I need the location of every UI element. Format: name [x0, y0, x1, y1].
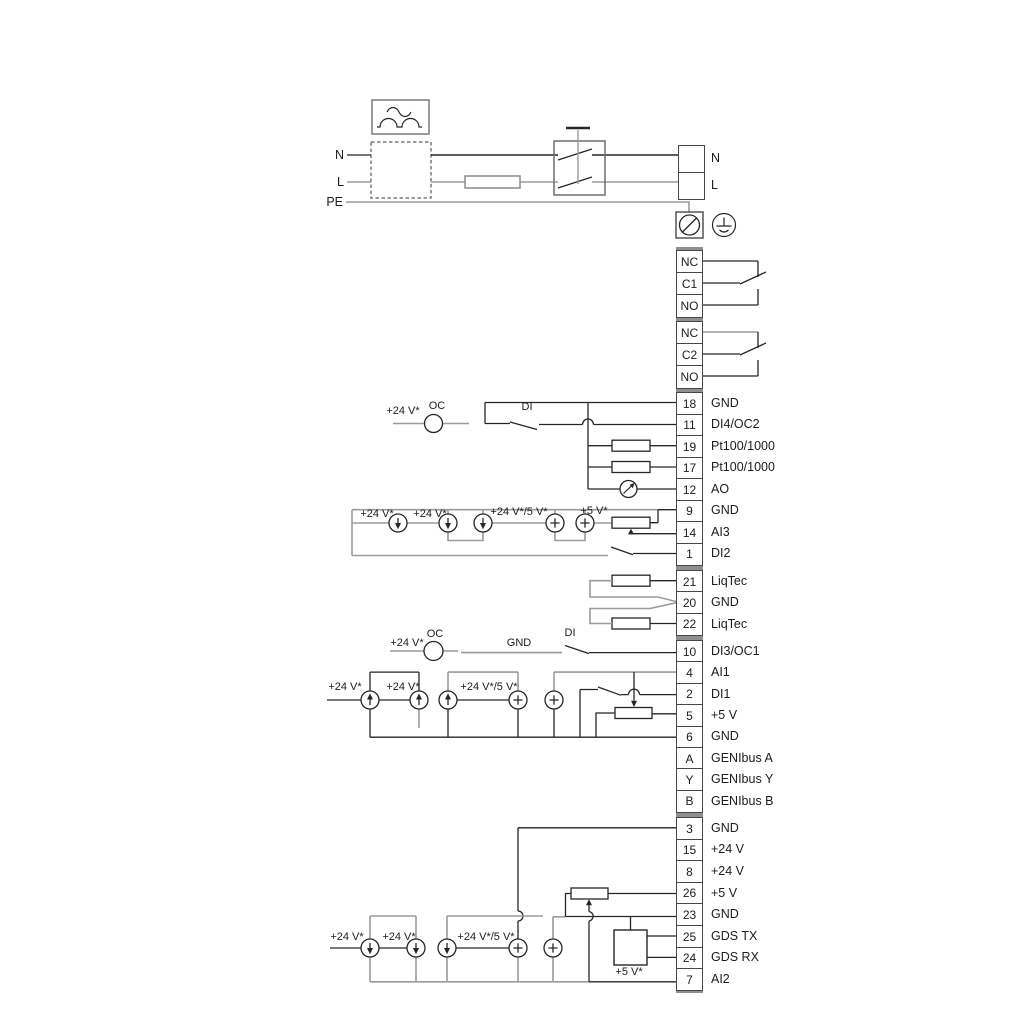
terminal-label-Y: GENIbus Y — [711, 772, 773, 786]
protective-earth-icon — [713, 214, 736, 237]
terminal-label-21: LiqTec — [711, 574, 747, 588]
terminal-label-6: GND — [711, 729, 739, 743]
terminal-label-A: GENIbus A — [711, 751, 773, 765]
terminal-label-25: GDS TX — [711, 929, 757, 943]
terminal-label-18: GND — [711, 396, 739, 410]
wiring-diagram: NLNCC1NONCC2NOGNDDI4/OC2Pt100/1000Pt100/… — [0, 0, 1024, 1024]
terminal-14: 14 — [676, 521, 703, 544]
terminal-label-10: DI3/OC1 — [711, 644, 760, 658]
wire-label-pw-l: L — [337, 175, 344, 189]
terminal-20: 20 — [676, 591, 703, 614]
terminal-label-5: +5 V — [711, 708, 737, 722]
wire-label-sa-v24a: +24 V* — [360, 508, 393, 520]
terminal-23: 23 — [676, 903, 703, 926]
terminal-12: 12 — [676, 478, 703, 501]
terminal-C1: C1 — [676, 272, 703, 296]
analog-output-meter-icon — [620, 481, 637, 498]
terminal-label-12: AO — [711, 482, 729, 496]
wire-label-r10-v24: +24 V* — [390, 637, 423, 649]
terminal-3: 3 — [676, 817, 703, 840]
terminal-Y: Y — [676, 768, 703, 791]
terminal-6: 6 — [676, 726, 703, 749]
terminal-group-io3: 3158262325247 — [676, 814, 703, 993]
ai2-gds-wiring — [330, 828, 676, 982]
potentiometer-icon-ai2 — [571, 888, 608, 899]
terminal-26: 26 — [676, 882, 703, 905]
terminal-mains-L — [678, 172, 705, 200]
terminal-NO: NO — [676, 365, 703, 389]
terminal-label-15: +24 V — [711, 842, 744, 856]
wire-label-sc-v5: +5 V* — [615, 966, 642, 978]
wire-label-sa-v245: +24 V*/5 V* — [490, 506, 547, 518]
terminal-label-2: DI1 — [711, 687, 730, 701]
terminal-label-17: Pt100/1000 — [711, 460, 775, 474]
terminal-group-mains — [678, 145, 705, 198]
wire-label-sc-v245: +24 V*/5 V* — [457, 931, 514, 943]
wire-label-r10-di: DI — [565, 627, 576, 639]
terminal-11: 11 — [676, 414, 703, 437]
terminal-label-1: DI2 — [711, 546, 730, 560]
terminal-label-4: AI1 — [711, 665, 730, 679]
relay1-contact-wiring — [703, 261, 766, 305]
pt100-resistor-icon-19 — [612, 440, 650, 451]
terminal-2: 2 — [676, 683, 703, 706]
terminal-label-L: L — [711, 178, 718, 192]
terminal-mains-N — [678, 145, 705, 173]
terminal-label-11: DI4/OC2 — [711, 417, 760, 431]
terminal-1: 1 — [676, 543, 703, 566]
ac-rectified-waveform-icon — [372, 100, 429, 134]
terminal-group-relay1: NCC1NO — [676, 247, 703, 319]
wire-label-r10-gnd: GND — [507, 637, 531, 649]
terminal-label-26: +5 V — [711, 886, 737, 900]
terminal-group-liqtec: 212022 — [676, 567, 703, 637]
wire-label-sb-v245: +24 V*/5 V* — [460, 681, 517, 693]
terminal-5: 5 — [676, 704, 703, 727]
terminal-label-14: AI3 — [711, 525, 730, 539]
terminal-NO: NO — [676, 294, 703, 318]
fuse-icon — [465, 176, 520, 188]
terminal-10: 10 — [676, 640, 703, 663]
terminal-label-23: GND — [711, 907, 739, 921]
liqtec-sensor-wiring — [590, 575, 676, 629]
terminal-label-N: N — [711, 151, 720, 165]
terminal-18: 18 — [676, 392, 703, 415]
terminal-B: B — [676, 790, 703, 813]
wire-label-sa-v5: +5 V* — [580, 505, 607, 517]
wire-label-sb-v24b: +24 V* — [386, 681, 419, 693]
terminal-22: 22 — [676, 613, 703, 636]
terminal-group-io2: 104256AYB — [676, 637, 703, 814]
terminal-24: 24 — [676, 947, 703, 970]
open-collector-icon-di3 — [424, 642, 443, 661]
terminal-label-24: GDS RX — [711, 950, 759, 964]
terminal-group-relay2: NCC2NO — [676, 318, 703, 390]
terminal-label-20: GND — [711, 595, 739, 609]
io1-wiring — [393, 403, 676, 498]
wire-label-r11-v24: +24 V* — [386, 405, 419, 417]
wire-label-pw-pe: PE — [326, 195, 343, 209]
terminal-NC: NC — [676, 321, 703, 345]
terminal-label-B: GENIbus B — [711, 794, 774, 808]
double-pole-mains-switch-icon — [554, 128, 605, 195]
terminal-label-7: AI2 — [711, 972, 730, 986]
terminal-A: A — [676, 747, 703, 770]
relay2-contact-wiring — [703, 332, 766, 376]
wiper-arrow-up-icon2 — [586, 899, 592, 905]
terminal-label-22: LiqTec — [711, 617, 747, 631]
terminal-19: 19 — [676, 435, 703, 458]
terminal-4: 4 — [676, 661, 703, 684]
wire-label-sc-v24b: +24 V* — [382, 931, 415, 943]
terminal-group-io1: 18111917129141 — [676, 389, 703, 567]
rectifier-dashed-box — [371, 142, 431, 198]
liqtec-resistor-icon-22 — [612, 618, 650, 629]
di3-oc1-wiring — [390, 642, 676, 661]
wiper-arrow-down-icon — [631, 701, 637, 707]
terminal-15: 15 — [676, 839, 703, 862]
terminal-label-19: Pt100/1000 — [711, 439, 775, 453]
terminal-25: 25 — [676, 925, 703, 948]
terminal-label-9: GND — [711, 503, 739, 517]
terminal-7: 7 — [676, 968, 703, 991]
terminal-NC: NC — [676, 250, 703, 274]
wire-label-sa-v24b: +24 V* — [413, 508, 446, 520]
terminal-9: 9 — [676, 500, 703, 523]
wire-label-sc-v24a: +24 V* — [330, 931, 363, 943]
open-collector-icon-di4 — [425, 415, 443, 433]
pe-terminal-icon — [676, 212, 703, 238]
potentiometer-icon-ai3 — [612, 517, 650, 528]
gds-module-box — [614, 917, 676, 966]
terminal-label-3: GND — [711, 821, 739, 835]
wire-label-r10-oc: OC — [427, 628, 444, 640]
terminal-label-8: +24 V — [711, 864, 744, 878]
pt100-resistor-icon-17 — [612, 462, 650, 473]
terminal-21: 21 — [676, 570, 703, 593]
terminal-8: 8 — [676, 860, 703, 883]
wire-label-pw-n: N — [335, 148, 344, 162]
potentiometer-icon-ai1 — [615, 708, 652, 719]
terminal-17: 17 — [676, 457, 703, 480]
terminal-C2: C2 — [676, 343, 703, 367]
wire-label-r11-di: DI — [522, 401, 533, 413]
wire-label-sb-v24a: +24 V* — [328, 681, 361, 693]
wire-label-r11-oc: OC — [429, 400, 446, 412]
liqtec-resistor-icon-21 — [612, 575, 650, 586]
